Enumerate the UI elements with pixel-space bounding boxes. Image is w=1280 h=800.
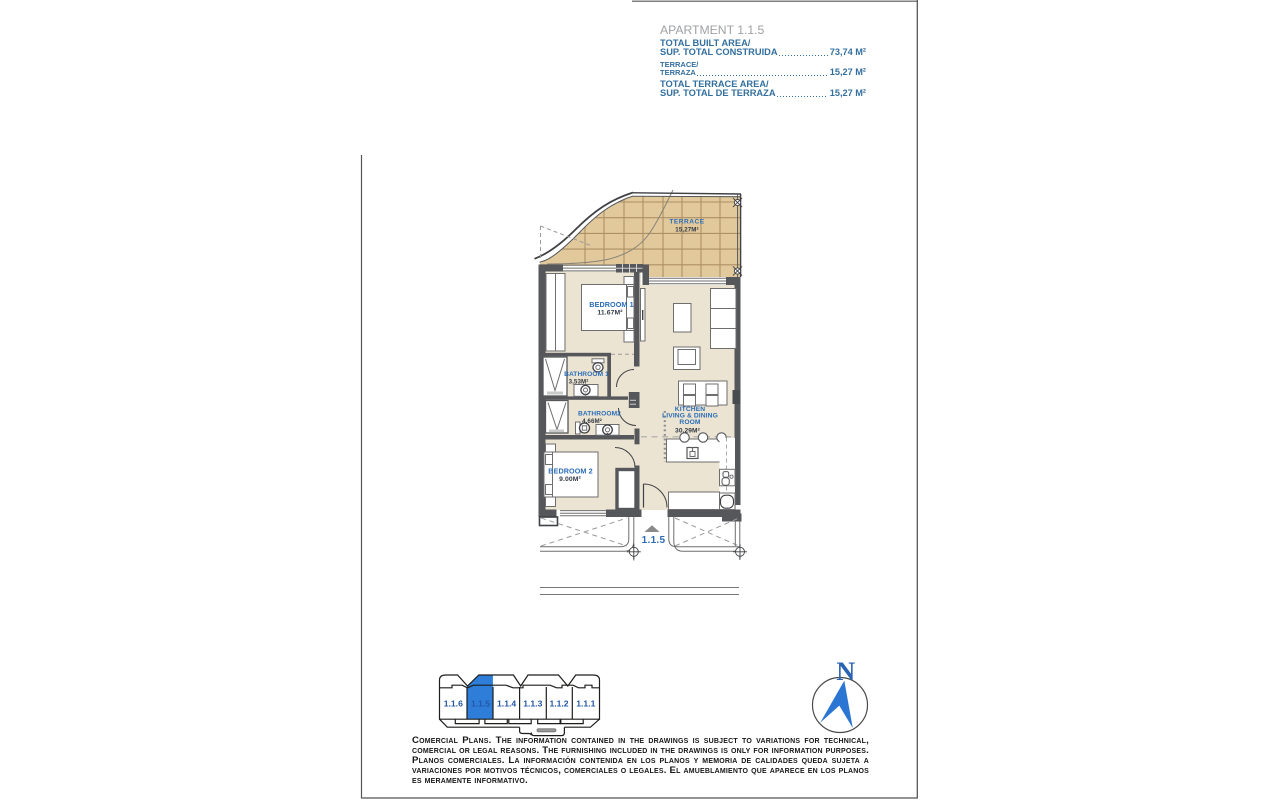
svg-text:1.1.5: 1.1.5 <box>471 699 490 709</box>
svg-text:BEDROOM 2: BEDROOM 2 <box>548 467 592 476</box>
svg-text:TERRACE: TERRACE <box>669 219 704 226</box>
svg-text:BATHROOM2: BATHROOM2 <box>578 411 621 418</box>
svg-text:15,27M²: 15,27M² <box>675 226 698 233</box>
svg-text:1.1.3: 1.1.3 <box>523 699 542 709</box>
svg-text:1.1.5: 1.1.5 <box>642 535 666 546</box>
svg-text:11.67M²: 11.67M² <box>597 310 623 317</box>
svg-text:BEDROOM 1: BEDROOM 1 <box>589 300 633 309</box>
svg-text:N: N <box>836 657 855 686</box>
svg-text:1.1.6: 1.1.6 <box>444 699 463 709</box>
svg-text:BATHROOM 1: BATHROOM 1 <box>564 371 609 378</box>
svg-text:3,53M²: 3,53M² <box>569 379 589 386</box>
svg-text:1.1.2: 1.1.2 <box>549 699 568 709</box>
svg-text:4,66M²: 4,66M² <box>582 418 602 425</box>
svg-text:9.00M²: 9.00M² <box>559 476 581 483</box>
svg-text:1.1.4: 1.1.4 <box>497 699 516 709</box>
svg-text:1.1.1: 1.1.1 <box>576 699 595 709</box>
svg-text:ROOM: ROOM <box>679 419 701 426</box>
svg-text:30.29M²: 30.29M² <box>675 427 701 434</box>
